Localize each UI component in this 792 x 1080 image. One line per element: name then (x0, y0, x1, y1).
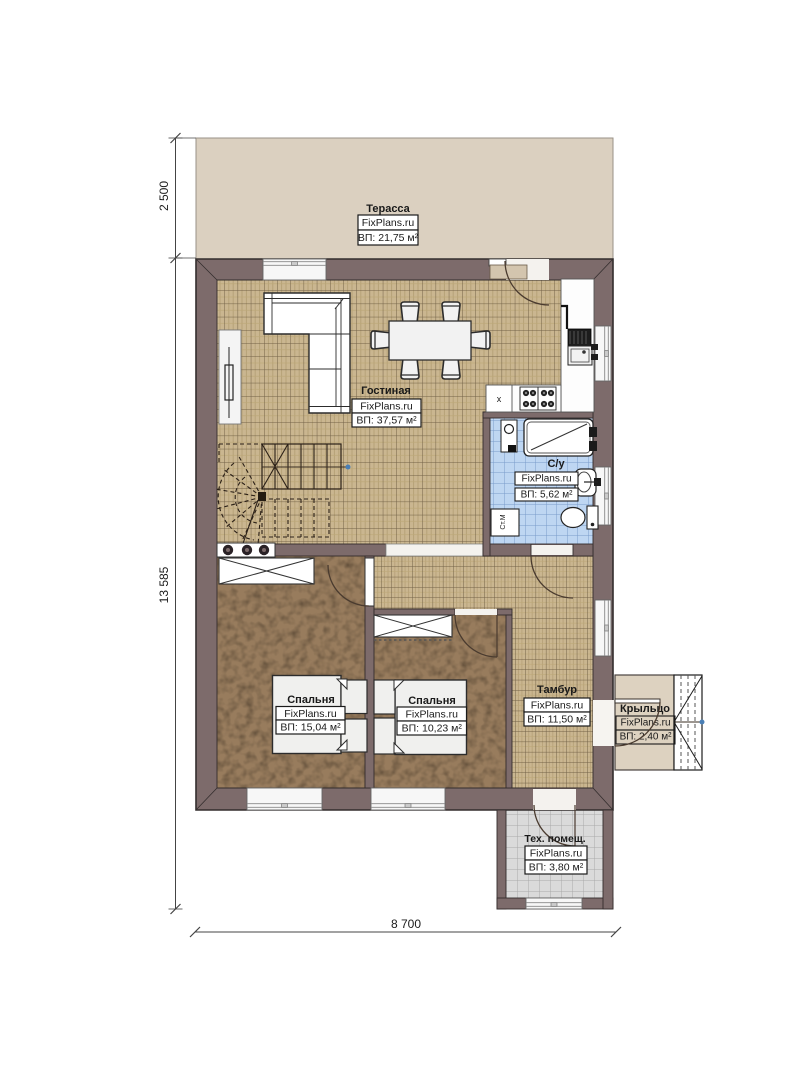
svg-text:x: x (497, 394, 502, 404)
svg-text:FixPlans.ru: FixPlans.ru (284, 708, 337, 720)
svg-text:Крыльцо: Крыльцо (620, 703, 670, 715)
svg-text:Спальня: Спальня (408, 695, 456, 707)
svg-text:FixPlans.ru: FixPlans.ru (405, 709, 458, 721)
svg-text:С/у: С/у (547, 458, 565, 470)
svg-text:FixPlans.ru: FixPlans.ru (521, 474, 571, 485)
svg-text:Тамбур: Тамбур (537, 684, 577, 696)
svg-text:Гостиная: Гостиная (361, 385, 411, 397)
svg-text:ВП: 21,75 м²: ВП: 21,75 м² (358, 232, 419, 244)
svg-text:Тех. помещ.: Тех. помещ. (524, 833, 585, 845)
svg-text:Спальня: Спальня (287, 694, 335, 706)
svg-text:Ст.М: Ст.М (500, 514, 507, 529)
svg-text:ВП: 15,04 м²: ВП: 15,04 м² (280, 722, 341, 734)
svg-text:ВП: 37,57 м²: ВП: 37,57 м² (356, 415, 417, 427)
svg-text:FixPlans.ru: FixPlans.ru (531, 700, 584, 712)
svg-text:ВП: 3,80 м²: ВП: 3,80 м² (529, 862, 584, 874)
svg-text:ВП: 5,62 м²: ВП: 5,62 м² (521, 490, 574, 501)
svg-text:Терасса: Терасса (366, 203, 410, 215)
svg-text:13 585: 13 585 (157, 566, 171, 603)
svg-text:2 500: 2 500 (157, 181, 171, 211)
svg-text:FixPlans.ru: FixPlans.ru (620, 718, 670, 729)
svg-text:ВП: 10,23 м²: ВП: 10,23 м² (402, 723, 463, 735)
svg-text:ВП: 11,50 м²: ВП: 11,50 м² (527, 714, 587, 726)
svg-text:FixPlans.ru: FixPlans.ru (362, 217, 415, 229)
svg-text:8 700: 8 700 (391, 917, 421, 931)
svg-text:FixPlans.ru: FixPlans.ru (360, 401, 413, 413)
svg-text:FixPlans.ru: FixPlans.ru (530, 848, 583, 860)
